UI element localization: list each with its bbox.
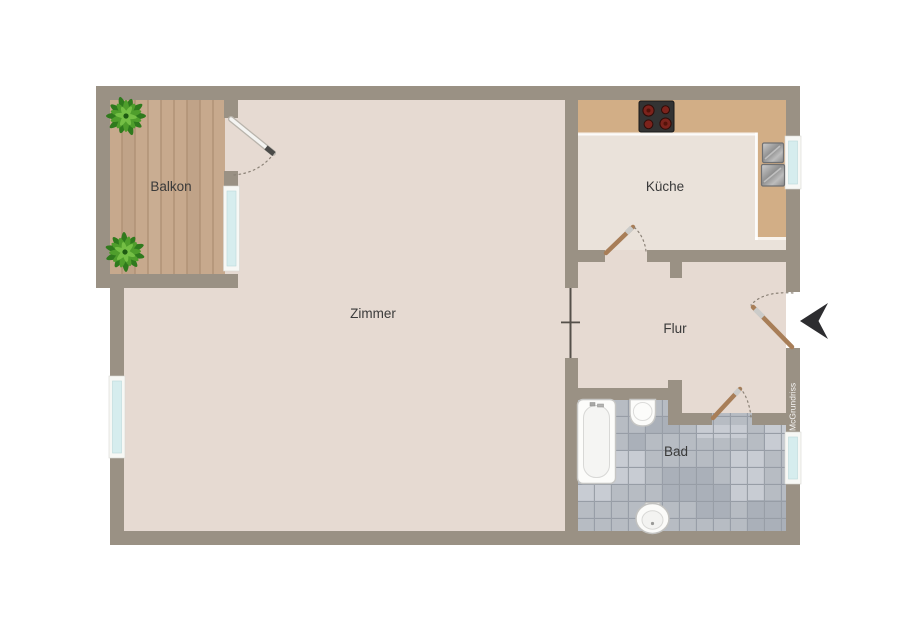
bathtub-icon bbox=[578, 400, 616, 484]
counter-edge bbox=[755, 237, 786, 240]
window-kueche bbox=[785, 136, 801, 189]
tile-grout-grid bbox=[682, 413, 786, 531]
watermark-text: McGrundriss bbox=[788, 383, 798, 431]
sink-icon bbox=[762, 143, 785, 186]
room-label-zimmer: Zimmer bbox=[350, 306, 396, 321]
wall-flur-bad-left bbox=[565, 388, 682, 400]
wall-balcony-right-stub bbox=[224, 100, 238, 118]
counter-edge bbox=[578, 133, 757, 136]
room-label-bad: Bad bbox=[664, 444, 688, 459]
room-label-kueche: Küche bbox=[646, 179, 684, 194]
wall-balcony-right-stub bbox=[224, 171, 238, 187]
room-label-flur: Flur bbox=[663, 321, 687, 336]
window-balcony bbox=[224, 186, 240, 271]
window-zimmer-left bbox=[109, 376, 125, 458]
stove-icon bbox=[639, 101, 674, 132]
wall-balcony-bottom bbox=[96, 274, 238, 288]
wall-stub-flur-top bbox=[670, 262, 682, 278]
wall-flur-bad-right bbox=[682, 413, 712, 425]
counter-top-run bbox=[578, 100, 786, 134]
wall-kueche-flur bbox=[647, 250, 786, 262]
wall-bottom bbox=[110, 531, 800, 545]
toilet-icon bbox=[636, 503, 669, 534]
floors bbox=[110, 100, 786, 531]
room-label-balkon: Balkon bbox=[150, 179, 191, 194]
door-leaf-tip bbox=[735, 390, 740, 395]
entrance-arrow-icon bbox=[800, 303, 828, 339]
wall-top bbox=[96, 86, 800, 100]
floorplan-svg: Balkon Küche Zimmer Flur Bad McGrundriss bbox=[0, 0, 900, 635]
wall-stub-bad bbox=[668, 380, 682, 425]
washbasin-icon bbox=[630, 400, 656, 427]
floorplan-canvas: Balkon Küche Zimmer Flur Bad McGrundriss bbox=[0, 0, 900, 635]
opening-tick bbox=[561, 322, 580, 324]
wall-zimmer-bad bbox=[565, 358, 578, 531]
wall-kueche-flur bbox=[565, 250, 605, 262]
wall-flur-bad-right bbox=[752, 413, 786, 425]
counter-edge bbox=[755, 133, 758, 241]
window-bad bbox=[785, 432, 801, 484]
